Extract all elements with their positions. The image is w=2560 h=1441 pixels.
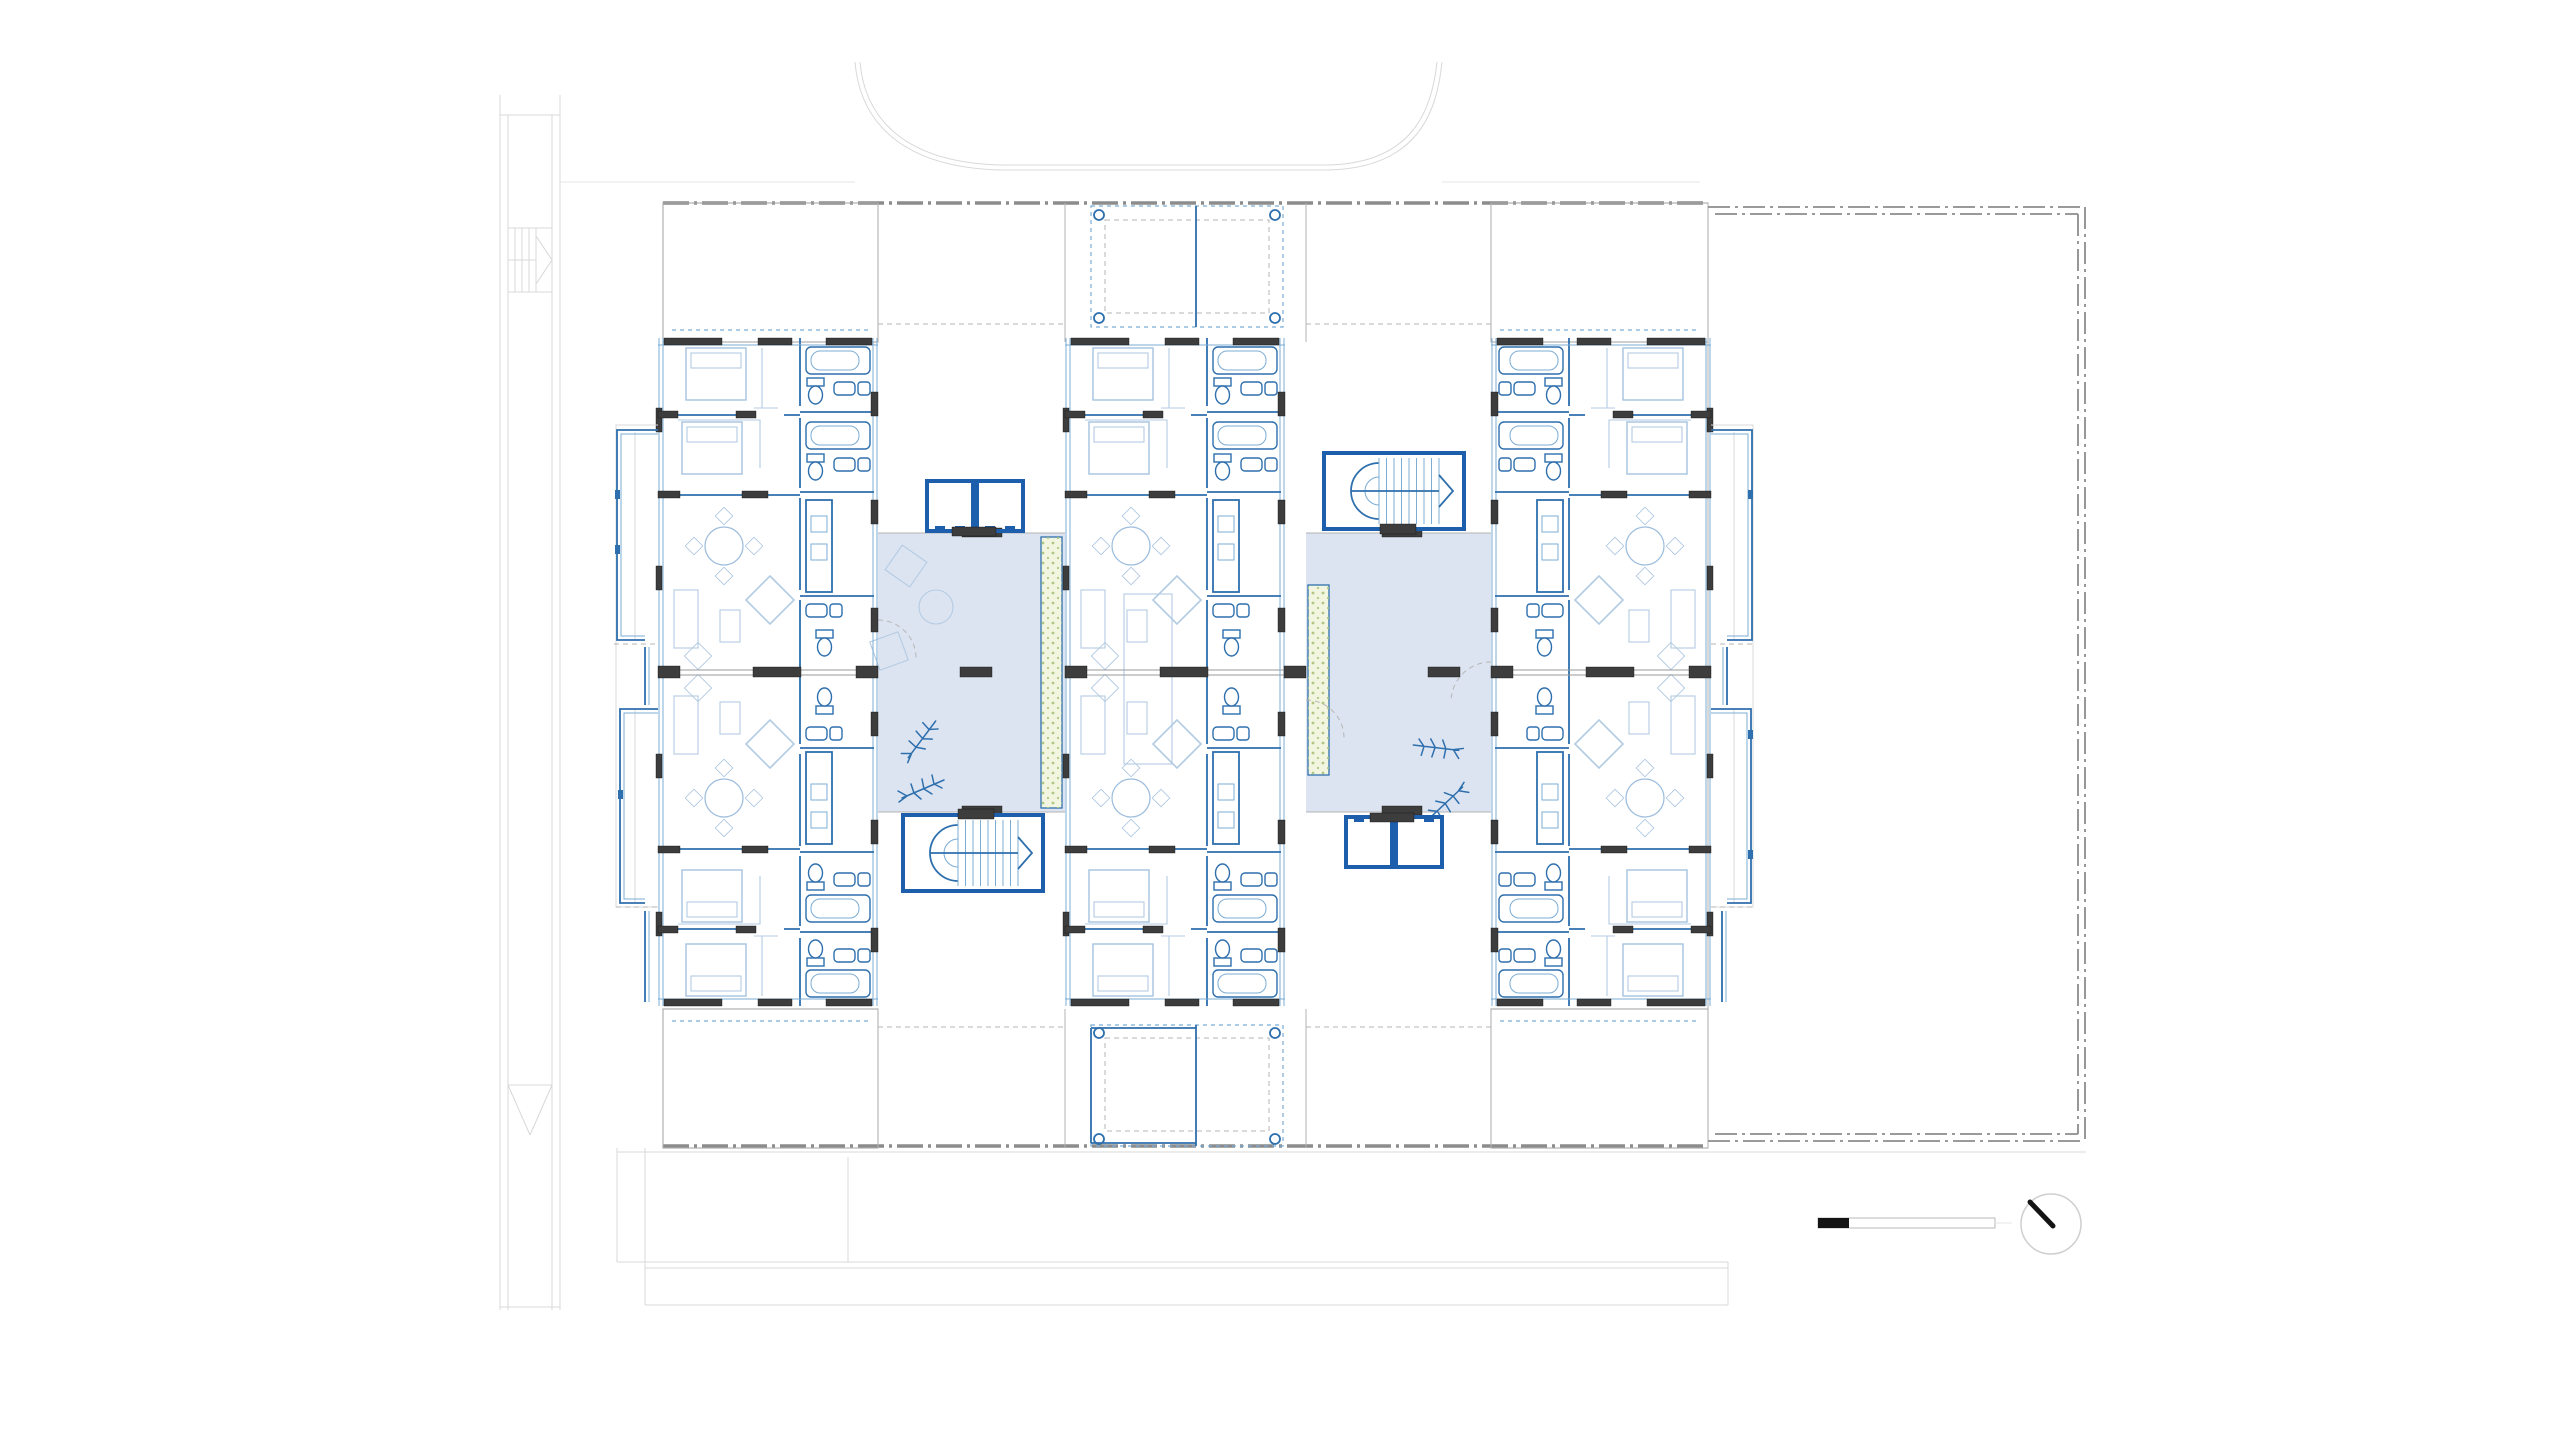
apartment-north-center [1063,338,1285,672]
apartment-southeast [1491,672,1713,1006]
apartment-south-center [1063,672,1285,1006]
elevator-pair-east [1346,813,1442,867]
shared-table [1124,594,1172,764]
west-courtyard [870,481,1065,891]
floor-plan-drawing [0,0,2560,1441]
floor-plan-sheet [0,0,2560,1441]
driveway-curve-north [560,62,1700,182]
party-wall-spine [658,666,1711,678]
stair-west [903,809,1043,891]
north-balcony [1091,206,1283,327]
site-context [500,62,2086,1310]
stepped-balconies-west [614,425,658,1002]
stair-east [1324,453,1464,534]
apartment-southwest [656,672,878,1006]
elevator-pair-west [927,481,1023,536]
roof-box-northwest [663,203,878,342]
south-balcony [1091,1025,1283,1146]
scale-bar [1818,1218,2012,1228]
apartment-northwest [656,338,878,672]
planting-strip-east-courtyard [1308,585,1329,775]
roof-box-southeast [1491,1009,1708,1148]
roof-box-southwest [663,1009,878,1148]
east-terrace [1708,203,2085,1148]
east-courtyard [1306,453,1491,867]
planting-strip-west-courtyard [1041,537,1062,808]
site-strip-west [500,95,560,1310]
stepped-balconies-east [1711,425,1755,1002]
apartment-northeast [1491,338,1713,672]
roof-box-northeast [1491,203,1708,342]
north-arrow-icon [2021,1194,2081,1254]
